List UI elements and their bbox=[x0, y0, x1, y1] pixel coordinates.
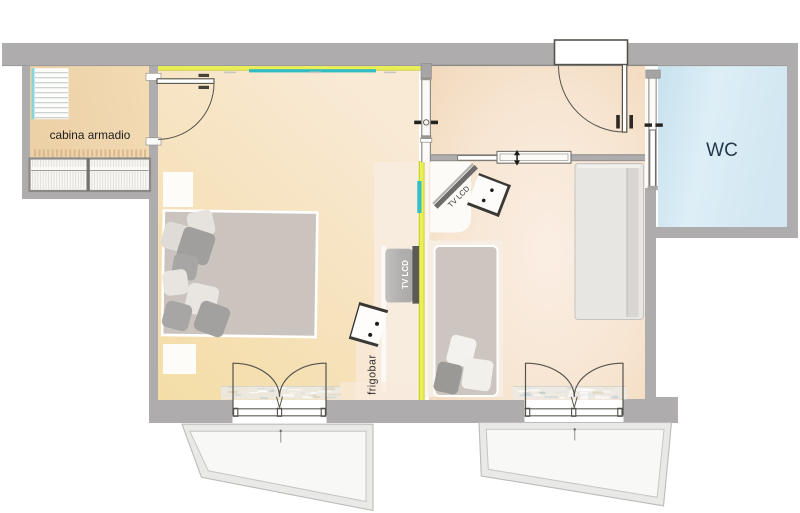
svg-text:frigobar: frigobar bbox=[367, 354, 379, 394]
svg-text:cabina armadio: cabina armadio bbox=[50, 128, 131, 142]
svg-text:WC: WC bbox=[706, 140, 738, 161]
svg-text:TV LCD: TV LCD bbox=[401, 260, 410, 289]
